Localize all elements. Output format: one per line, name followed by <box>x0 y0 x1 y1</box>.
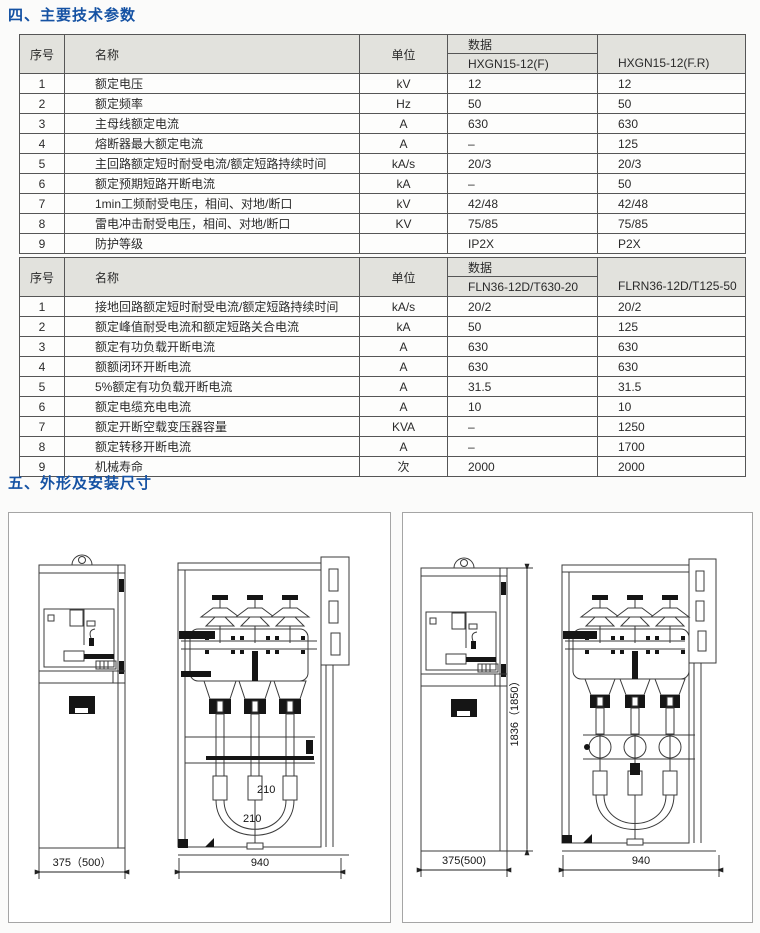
drawing-panel-right: 375(500) 940 1836（1850） <box>402 512 753 923</box>
table-row: 6额定预期短路开断电流kA–50 <box>20 174 746 194</box>
cell-name: 5%额定有功负载开断电流 <box>65 377 360 397</box>
col-header-model-1: FLN36-12D/T630-20 <box>448 277 598 297</box>
table-row: 1额定电压kV1212 <box>20 74 746 94</box>
cell-value-1: 10 <box>448 397 598 417</box>
col-header-index: 序号 <box>20 258 65 297</box>
cell-value-2: 2000 <box>598 457 746 477</box>
col-header-unit: 单位 <box>360 35 448 74</box>
cell-index: 5 <box>20 154 65 174</box>
section-title-dimensions: 五、外形及安装尺寸 <box>8 472 152 493</box>
cell-unit: kA/s <box>360 154 448 174</box>
dimension-label-210-upper: 210 <box>257 784 275 796</box>
switch-body <box>179 629 317 699</box>
cell-value-2: 50 <box>598 94 746 114</box>
cell-name: 防护等级 <box>65 234 360 254</box>
cell-name: 额定预期短路开断电流 <box>65 174 360 194</box>
cell-index: 8 <box>20 214 65 234</box>
cell-value-2: 20/2 <box>598 297 746 317</box>
cell-name: 主母线额定电流 <box>65 114 360 134</box>
dimension-label-front-width: 940 <box>563 855 719 867</box>
cell-value-2: 630 <box>598 337 746 357</box>
cell-index: 6 <box>20 174 65 194</box>
col-header-data: 数据 <box>448 258 598 277</box>
drawing-panel-left: 375（500） 940 210 210 <box>8 512 391 923</box>
table-row: 2额定频率Hz5050 <box>20 94 746 114</box>
cell-value-1: 12 <box>448 74 598 94</box>
cell-unit: kA <box>360 174 448 194</box>
table-row: 9防护等级IP2XP2X <box>20 234 746 254</box>
col-header-unit: 单位 <box>360 258 448 297</box>
table-row: 5主回路额定短时耐受电流/额定短路持续时间kA/s20/320/3 <box>20 154 746 174</box>
cell-unit: A <box>360 437 448 457</box>
col-header-model-2: HXGN15-12(F.R) <box>598 35 746 74</box>
page: { "page": { "section4_title": "四、主要技术参数"… <box>0 0 760 933</box>
cell-unit: KV <box>360 214 448 234</box>
cell-index: 7 <box>20 194 65 214</box>
cell-unit: A <box>360 377 448 397</box>
cell-value-2: 125 <box>598 134 746 154</box>
cell-value-1: 630 <box>448 337 598 357</box>
table-row: 2额定峰值耐受电流和额定短路关合电流kA50125 <box>20 317 746 337</box>
cell-unit: A <box>360 397 448 417</box>
cell-name: 额额闭环开断电流 <box>65 357 360 377</box>
cell-value-1: 42/48 <box>448 194 598 214</box>
cell-value-1: – <box>448 134 598 154</box>
table-row: 4熔断器最大额定电流A–125 <box>20 134 746 154</box>
table-row: 8额定转移开断电流A–1700 <box>20 437 746 457</box>
cable-loop <box>596 795 674 845</box>
cell-index: 7 <box>20 417 65 437</box>
cell-name: 额定电压 <box>65 74 360 94</box>
cell-index: 1 <box>20 297 65 317</box>
side-view-drawing <box>39 555 125 848</box>
cell-unit: kA/s <box>360 297 448 317</box>
cell-name: 接地回路额定短时耐受电流/额定短路持续时间 <box>65 297 360 317</box>
cell-value-2: 630 <box>598 114 746 134</box>
cell-unit: kV <box>360 74 448 94</box>
cell-index: 2 <box>20 317 65 337</box>
vent-panel <box>689 559 716 843</box>
cell-name: 额定电缆充电电流 <box>65 397 360 417</box>
cell-unit: kV <box>360 194 448 214</box>
cell-unit: A <box>360 134 448 154</box>
dimension-label-side-width: 375(500) <box>421 855 507 867</box>
cell-value-1: 20/2 <box>448 297 598 317</box>
cell-value-1: IP2X <box>448 234 598 254</box>
table-row: 55%额定有功负载开断电流A31.531.5 <box>20 377 746 397</box>
cell-value-1: 630 <box>448 114 598 134</box>
col-header-model-1: HXGN15-12(F) <box>448 54 598 74</box>
cell-index: 2 <box>20 94 65 114</box>
cell-name: 额定频率 <box>65 94 360 114</box>
cell-value-2: 50 <box>598 174 746 194</box>
table-row: 3主母线额定电流A630630 <box>20 114 746 134</box>
cell-value-1: 75/85 <box>448 214 598 234</box>
cell-unit: A <box>360 357 448 377</box>
cell-value-2: P2X <box>598 234 746 254</box>
cell-value-2: 31.5 <box>598 377 746 397</box>
front-view-drawing <box>562 559 716 851</box>
col-header-model-2: FLRN36-12D/T125-50 <box>598 258 746 297</box>
cell-index: 1 <box>20 74 65 94</box>
cell-value-1: 50 <box>448 94 598 114</box>
cell-value-2: 125 <box>598 317 746 337</box>
cell-index: 3 <box>20 337 65 357</box>
table-row: 3额定有功负载开断电流A630630 <box>20 337 746 357</box>
col-header-name: 名称 <box>65 258 360 297</box>
cell-value-2: 630 <box>598 357 746 377</box>
table-row: 71min工频耐受电压，相间、对地/断口kV42/4842/48 <box>20 194 746 214</box>
col-header-data: 数据 <box>448 35 598 54</box>
cell-value-1: 630 <box>448 357 598 377</box>
cell-name: 主回路额定短时耐受电流/额定短路持续时间 <box>65 154 360 174</box>
cell-value-2: 12 <box>598 74 746 94</box>
cell-index: 8 <box>20 437 65 457</box>
cell-index: 4 <box>20 357 65 377</box>
cell-value-1: – <box>448 417 598 437</box>
pole-group <box>209 699 301 800</box>
dimension-label-210-lower: 210 <box>243 813 261 825</box>
cell-value-1: – <box>448 437 598 457</box>
cell-value-1: 50 <box>448 317 598 337</box>
cell-value-2: 75/85 <box>598 214 746 234</box>
vent-panel <box>321 557 349 847</box>
cell-unit: A <box>360 114 448 134</box>
cell-name: 额定峰值耐受电流和额定短路关合电流 <box>65 317 360 337</box>
cell-unit: 次 <box>360 457 448 477</box>
cell-value-1: 2000 <box>448 457 598 477</box>
table-row: 1接地回路额定短时耐受电流/额定短路持续时间kA/s20/220/2 <box>20 297 746 317</box>
cell-value-2: 1700 <box>598 437 746 457</box>
dimension-label-front-width: 940 <box>179 857 341 869</box>
cell-value-1: – <box>448 174 598 194</box>
front-view-drawing <box>178 557 349 855</box>
cell-name: 熔断器最大额定电流 <box>65 134 360 154</box>
cell-index: 6 <box>20 397 65 417</box>
cell-name: 额定有功负载开断电流 <box>65 337 360 357</box>
dimension-label-side-height: 1836（1850） <box>506 666 522 756</box>
table-row: 6额定电缆充电电流A1010 <box>20 397 746 417</box>
cell-index: 4 <box>20 134 65 154</box>
pole-group <box>590 695 680 795</box>
cell-index: 3 <box>20 114 65 134</box>
cell-name: 额定转移开断电流 <box>65 437 360 457</box>
cell-value-2: 20/3 <box>598 154 746 174</box>
cell-value-1: 20/3 <box>448 154 598 174</box>
table-row: 4额额闭环开断电流A630630 <box>20 357 746 377</box>
cell-value-2: 42/48 <box>598 194 746 214</box>
cell-unit: KVA <box>360 417 448 437</box>
cell-unit: kA <box>360 317 448 337</box>
cell-name: 额定开断空载变压器容量 <box>65 417 360 437</box>
col-header-index: 序号 <box>20 35 65 74</box>
table-row: 7额定开断空载变压器容量KVA–1250 <box>20 417 746 437</box>
cell-value-2: 1250 <box>598 417 746 437</box>
cell-unit: Hz <box>360 94 448 114</box>
col-header-name: 名称 <box>65 35 360 74</box>
table-breaker-parameters: 序号 名称 单位 数据 FLRN36-12D/T125-50 FLN36-12D… <box>19 257 746 477</box>
cell-index: 5 <box>20 377 65 397</box>
table-main-parameters: 序号 名称 单位 数据 HXGN15-12(F.R) HXGN15-12(F) … <box>19 34 746 254</box>
side-view-drawing <box>421 558 507 851</box>
cell-name: 1min工频耐受电压，相间、对地/断口 <box>65 194 360 214</box>
table-row: 8雷电冲击耐受电压，相间、对地/断口KV75/8575/85 <box>20 214 746 234</box>
cell-value-2: 10 <box>598 397 746 417</box>
cell-unit <box>360 234 448 254</box>
cell-value-1: 31.5 <box>448 377 598 397</box>
cell-unit: A <box>360 337 448 357</box>
section-title-main-parameters: 四、主要技术参数 <box>8 4 136 25</box>
cell-name: 雷电冲击耐受电压，相间、对地/断口 <box>65 214 360 234</box>
dimension-label-side-width: 375（500） <box>39 857 125 869</box>
cell-index: 9 <box>20 234 65 254</box>
